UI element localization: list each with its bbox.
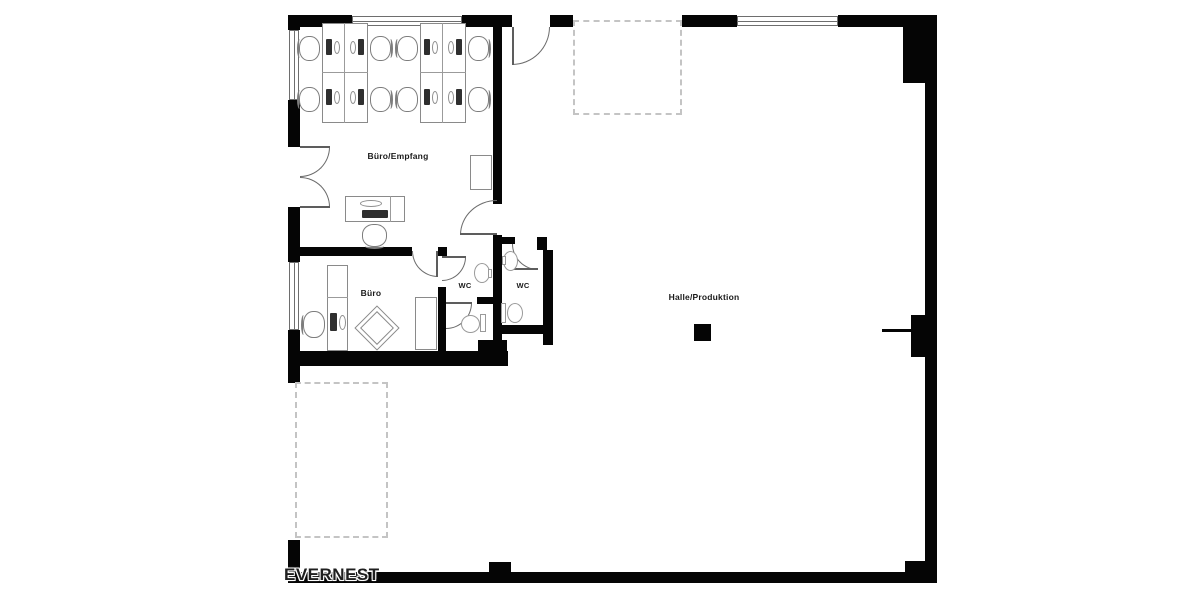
wall-office-bottom <box>288 351 508 366</box>
wall-wc-right <box>543 250 553 330</box>
wall-wc-top <box>493 237 515 244</box>
wall-wc-right-stub <box>543 325 553 345</box>
wall-office-divider-stub <box>438 247 447 256</box>
office-chair <box>299 87 320 112</box>
office-chair <box>299 36 320 61</box>
floor-plan-canvas: Büro/Empfang Büro WC WC Halle/Produktion… <box>0 0 1200 600</box>
office-chair <box>370 87 391 112</box>
desk-unit <box>327 265 348 351</box>
wall-left-1 <box>288 15 300 30</box>
monitor-icon <box>360 200 382 207</box>
office-chair <box>303 311 325 338</box>
wall-top-3 <box>550 15 573 27</box>
buero-door-leaf <box>436 251 438 277</box>
window-left-buero <box>289 262 299 330</box>
wall-wc-top-corner <box>537 237 547 250</box>
monitor-icon <box>424 39 430 55</box>
office-chair <box>468 36 489 61</box>
keyboard-icon <box>362 210 388 218</box>
monitor-icon <box>358 89 364 105</box>
entrance-door-leaf-lower <box>300 206 330 208</box>
keyboard-icon <box>448 91 454 104</box>
keyboard-icon <box>350 41 356 54</box>
beam-line <box>882 329 912 332</box>
wc-right-door-leaf <box>512 268 538 270</box>
desk-divider <box>344 23 345 123</box>
hall-door-leaf <box>512 27 514 65</box>
wall-wc-left <box>438 287 446 352</box>
keyboard-icon <box>339 315 346 330</box>
monitor-icon <box>326 89 332 105</box>
office-hall-door-leaf <box>460 233 497 235</box>
room-label-halle-produktion: Halle/Produktion <box>644 292 764 302</box>
room-label-wc-right: WC <box>503 281 543 290</box>
wall-right <box>925 15 937 583</box>
wall-office-bottom-corner <box>478 340 507 366</box>
wc-left-inner-door-leaf <box>446 302 472 304</box>
desk-divider <box>322 72 368 73</box>
toilet-icon <box>461 315 480 333</box>
monitor-icon <box>330 313 337 331</box>
office-hall-door-arc <box>460 200 497 235</box>
entrance-door-arc-lower <box>300 177 330 207</box>
room-label-buero-empfang: Büro/Empfang <box>338 151 458 161</box>
office-chair <box>397 87 418 112</box>
toilet-icon <box>507 303 523 323</box>
wall-office-divider <box>288 247 412 256</box>
wall-bottom <box>288 572 937 583</box>
dashed-area-top-gate <box>573 20 682 115</box>
wall-pier-right <box>911 315 937 357</box>
room-label-wc-left: WC <box>445 281 485 290</box>
wall-top-4 <box>682 15 737 27</box>
keyboard-icon <box>432 41 438 54</box>
keyboard-icon <box>350 91 356 104</box>
entrance-door-arc-upper <box>300 147 330 177</box>
office-chair <box>468 87 489 112</box>
keyboard-icon <box>334 41 340 54</box>
wall-top-2 <box>462 15 512 27</box>
cabinet <box>415 297 437 350</box>
keyboard-icon <box>448 41 454 54</box>
wc-left-door-leaf <box>442 256 466 258</box>
column <box>694 324 711 341</box>
desk-divider <box>390 196 391 222</box>
desk-divider <box>420 72 466 73</box>
window-top-hall <box>737 16 838 26</box>
room-label-buero: Büro <box>341 288 401 298</box>
toilet-tank-icon <box>480 314 486 332</box>
cabinet <box>470 155 492 190</box>
dashed-area-left-gate <box>295 382 388 538</box>
desk-cluster <box>420 23 466 123</box>
wall-pier-bottom <box>489 562 511 572</box>
keyboard-icon <box>432 91 438 104</box>
sink-tap-icon <box>502 256 506 265</box>
wc-left-door-arc <box>442 257 466 281</box>
wall-top-5 <box>838 15 905 27</box>
keyboard-icon <box>334 91 340 104</box>
wall-wc-jog <box>477 297 498 304</box>
entrance-door-leaf-upper <box>300 146 330 148</box>
wall-corner-bottom-right <box>905 561 937 583</box>
monitor-icon <box>358 39 364 55</box>
office-chair <box>370 36 391 61</box>
sink-tap-icon <box>488 269 492 278</box>
wall-office-right-upper <box>493 27 502 204</box>
office-chair <box>362 224 387 247</box>
desk-cluster <box>322 23 368 123</box>
desk-divider <box>442 23 443 123</box>
monitor-icon <box>424 89 430 105</box>
watermark-logo: EVERNEST <box>284 565 380 585</box>
monitor-icon <box>326 39 332 55</box>
buero-door-arc <box>412 251 438 277</box>
monitor-icon <box>456 39 462 55</box>
office-chair <box>397 36 418 61</box>
toilet-tank-icon <box>501 303 506 323</box>
hall-door-arc <box>512 27 550 65</box>
monitor-icon <box>456 89 462 105</box>
